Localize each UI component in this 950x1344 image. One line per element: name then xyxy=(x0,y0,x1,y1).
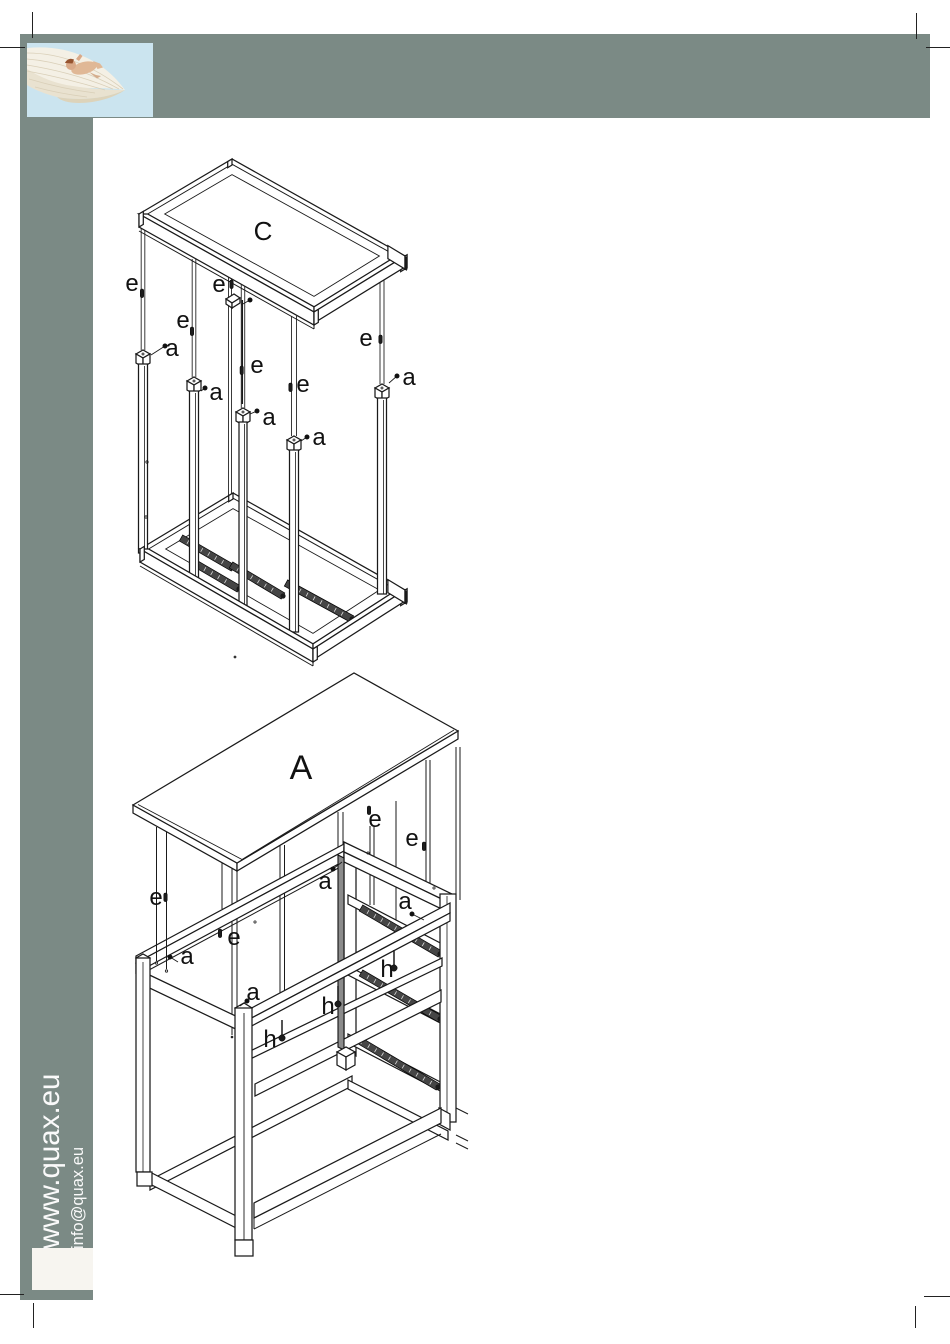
svg-text:a: a xyxy=(402,364,416,391)
svg-text:a: a xyxy=(180,943,194,970)
svg-text:h: h xyxy=(321,993,334,1020)
svg-text:e: e xyxy=(125,270,138,297)
svg-text:a: a xyxy=(312,424,326,451)
svg-text:a: a xyxy=(209,379,223,406)
svg-text:e: e xyxy=(227,924,240,951)
svg-text:e: e xyxy=(359,325,372,352)
svg-text:e: e xyxy=(405,825,418,852)
svg-text:A: A xyxy=(290,749,313,787)
svg-text:e: e xyxy=(149,884,162,911)
svg-text:e: e xyxy=(176,307,189,334)
svg-text:e: e xyxy=(250,352,263,379)
svg-text:a: a xyxy=(246,979,260,1006)
svg-text:e: e xyxy=(296,371,309,398)
svg-text:a: a xyxy=(262,404,276,431)
svg-text:a: a xyxy=(165,335,179,362)
svg-text:a: a xyxy=(318,868,332,895)
svg-text:e: e xyxy=(212,271,225,298)
svg-text:C: C xyxy=(254,216,273,246)
svg-text:h: h xyxy=(263,1026,276,1053)
svg-text:a: a xyxy=(398,888,412,915)
